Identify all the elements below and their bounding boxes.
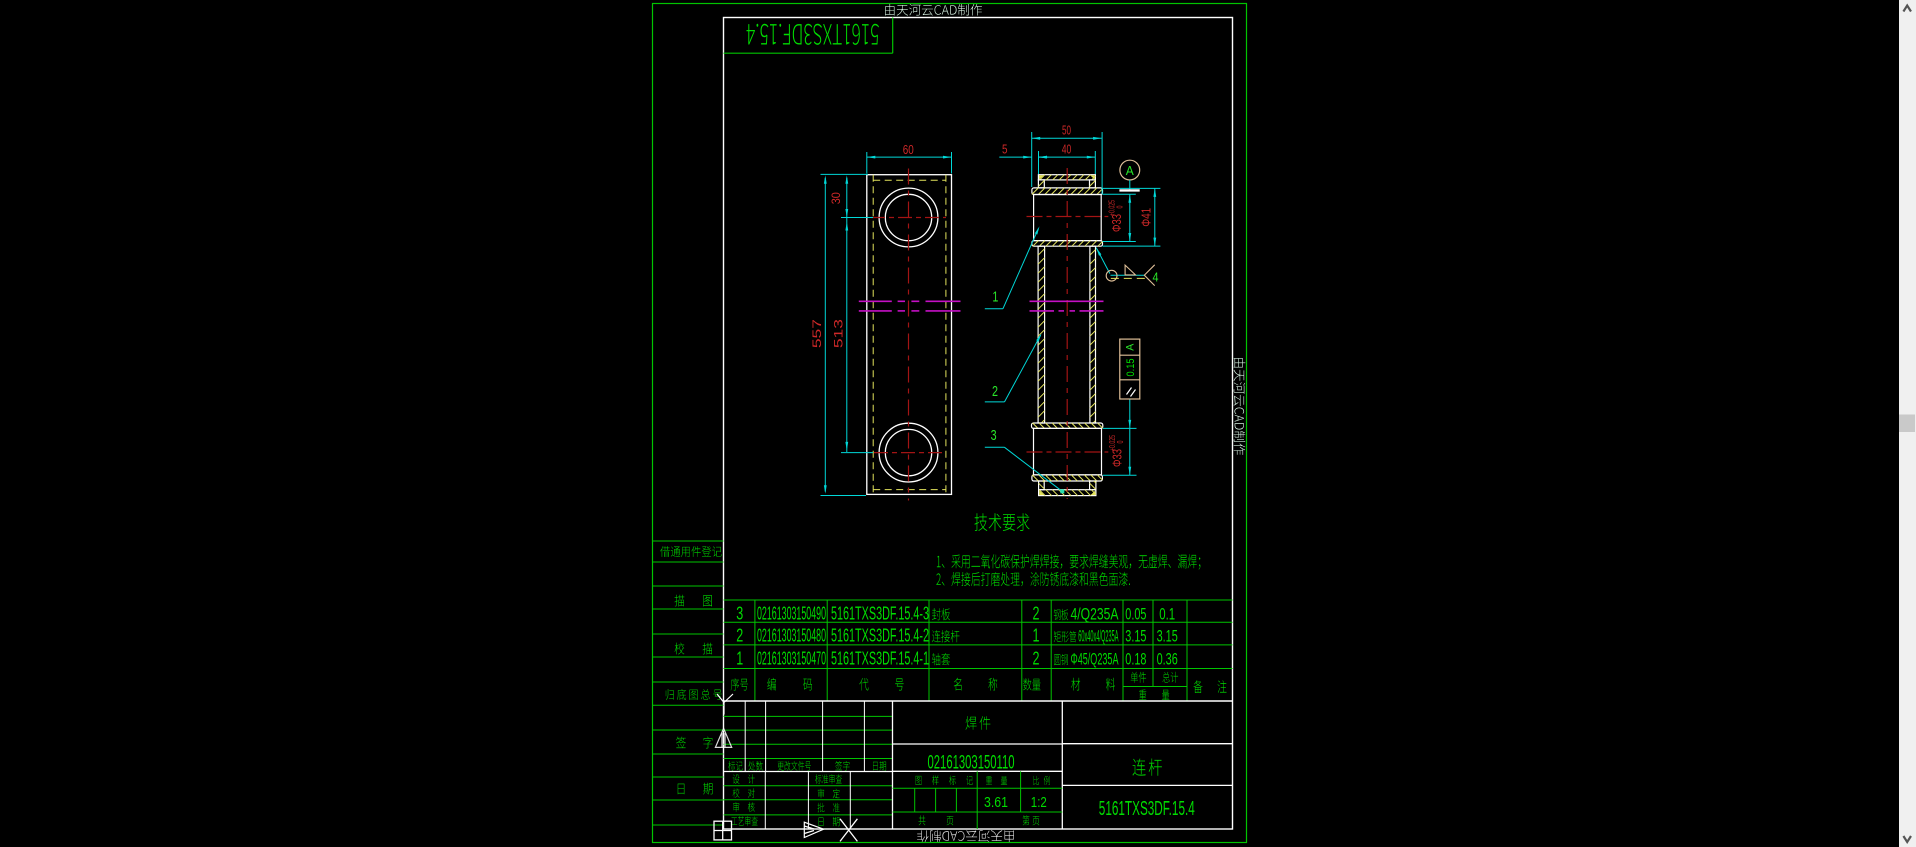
svg-text:0: 0 xyxy=(1116,205,1125,208)
svg-text:3.61: 3.61 xyxy=(984,795,1008,811)
svg-text:1: 1 xyxy=(736,648,743,668)
svg-text:5161TXS3DF.15.4-1: 5161TXS3DF.15.4-1 xyxy=(831,648,929,668)
svg-text:1: 1 xyxy=(1033,625,1040,645)
svg-text:0.05: 0.05 xyxy=(1125,604,1146,623)
svg-text:3.15: 3.15 xyxy=(1157,626,1178,645)
svg-text:2: 2 xyxy=(1033,603,1040,623)
svg-text:2: 2 xyxy=(736,625,743,645)
svg-text:4: 4 xyxy=(1153,270,1159,285)
svg-text:0.18: 0.18 xyxy=(1125,649,1146,668)
svg-text:30: 30 xyxy=(831,192,843,204)
svg-text:1: 1 xyxy=(992,288,998,305)
svg-text:A: A xyxy=(1125,343,1137,351)
svg-text:3: 3 xyxy=(736,603,743,623)
svg-text:3.15: 3.15 xyxy=(1125,626,1146,645)
svg-text:60: 60 xyxy=(903,142,914,157)
svg-text:5161TXS3DF.15.4-3: 5161TXS3DF.15.4-3 xyxy=(831,603,929,623)
svg-text:A: A xyxy=(1126,163,1134,178)
svg-text:60x40x4/Q235A: 60x40x4/Q235A xyxy=(1078,626,1118,645)
svg-text:0.15: 0.15 xyxy=(1125,359,1137,377)
svg-text:2: 2 xyxy=(992,383,998,400)
svg-text:2: 2 xyxy=(1033,648,1040,668)
svg-text:02161303150110: 02161303150110 xyxy=(928,753,1015,774)
svg-text:0: 0 xyxy=(1116,440,1125,443)
svg-text:5: 5 xyxy=(1002,141,1008,156)
svg-text:50: 50 xyxy=(1062,123,1071,138)
svg-text:5161TXS3DF.15.4: 5161TXS3DF.15.4 xyxy=(1099,798,1195,820)
svg-text:Φ45/Q235A: Φ45/Q235A xyxy=(1071,649,1119,668)
svg-text:3: 3 xyxy=(991,427,997,444)
svg-text:Φ41: Φ41 xyxy=(1140,208,1154,227)
svg-text:513: 513 xyxy=(833,319,845,348)
svg-text:40: 40 xyxy=(1062,141,1072,156)
svg-text:4/Q235A: 4/Q235A xyxy=(1071,604,1119,623)
svg-text:02161303150480: 02161303150480 xyxy=(757,625,826,645)
svg-text:0.1: 0.1 xyxy=(1159,604,1175,623)
svg-text:02161303150470: 02161303150470 xyxy=(757,648,826,668)
svg-text:5161TXS3DF.15.4-2: 5161TXS3DF.15.4-2 xyxy=(831,625,929,645)
svg-text:1:2: 1:2 xyxy=(1031,795,1047,811)
svg-text:0.36: 0.36 xyxy=(1157,649,1178,668)
svg-text:557: 557 xyxy=(812,319,824,348)
svg-text:02161303150490: 02161303150490 xyxy=(757,603,826,623)
